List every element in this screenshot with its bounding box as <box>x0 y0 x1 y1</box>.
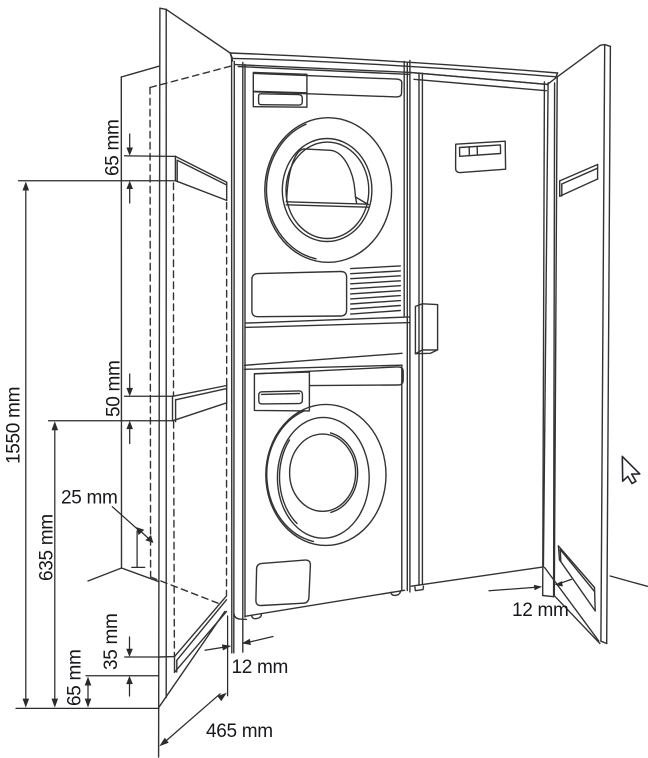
svg-text:35 mm: 35 mm <box>101 613 122 670</box>
svg-text:465 mm: 465 mm <box>206 721 273 742</box>
svg-text:65 mm: 65 mm <box>65 649 86 706</box>
svg-text:65 mm: 65 mm <box>103 119 124 176</box>
svg-text:1550 mm: 1550 mm <box>4 387 25 464</box>
svg-text:25 mm: 25 mm <box>61 488 118 509</box>
svg-text:12 mm: 12 mm <box>232 657 289 678</box>
svg-text:635 mm: 635 mm <box>37 514 58 581</box>
svg-text:12 mm: 12 mm <box>512 600 569 621</box>
svg-text:50 mm: 50 mm <box>104 360 125 417</box>
